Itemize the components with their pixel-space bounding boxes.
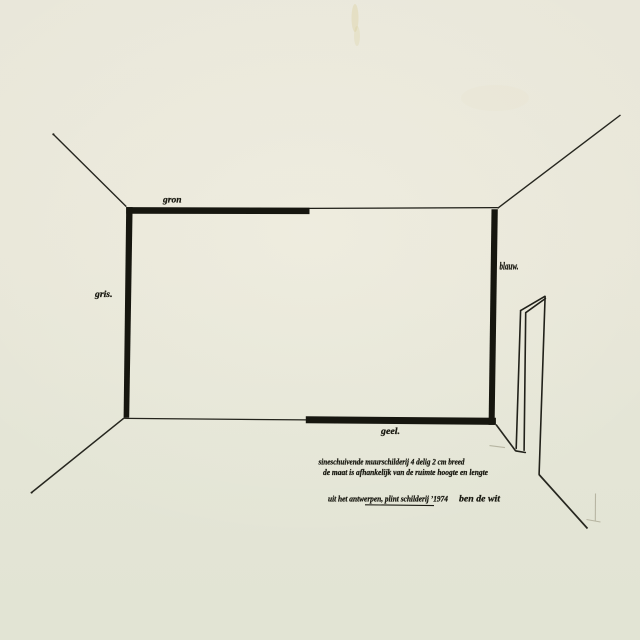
svg-text:de maat is afhankelijk van de: de maat is afhankelijk van de ruimte hoo… xyxy=(323,468,488,477)
svg-text:gris.: gris. xyxy=(94,289,113,299)
svg-text:gron: gron xyxy=(162,195,182,205)
svg-text:uit het antwerpen, plint schil: uit het antwerpen, plint schilderij ’197… xyxy=(328,494,448,503)
svg-text:blauw.: blauw. xyxy=(500,262,519,273)
svg-text:ben de wit: ben de wit xyxy=(459,495,500,505)
svg-text:geel.: geel. xyxy=(380,426,400,436)
svg-text:sineschuivende muurschilderij: sineschuivende muurschilderij 4 delig 2 … xyxy=(318,458,466,467)
